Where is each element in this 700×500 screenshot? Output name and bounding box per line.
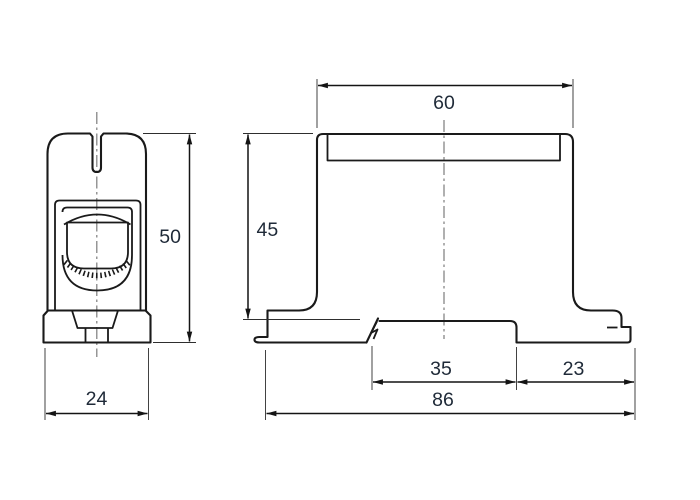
side-base-insert bbox=[72, 311, 118, 343]
front-view bbox=[255, 134, 631, 343]
front-base-profile bbox=[255, 311, 631, 343]
terminal-block-drawing: 50 24 60 45 35 23 86 bbox=[0, 0, 700, 500]
dimension-right-foot-width: 23 bbox=[518, 348, 636, 420]
overall-width-label: 86 bbox=[432, 389, 454, 411]
dimension-side-width: 24 bbox=[45, 348, 149, 420]
dimension-side-height: 50 bbox=[143, 134, 196, 343]
side-height-label: 50 bbox=[159, 226, 181, 248]
right-foot-width-label: 23 bbox=[563, 358, 585, 380]
top-width-label: 60 bbox=[433, 92, 455, 114]
technical-drawing-page: 50 24 60 45 35 23 86 bbox=[0, 0, 700, 500]
dimension-rail-recess-width: 35 bbox=[372, 346, 517, 390]
dimension-top-width: 60 bbox=[317, 79, 573, 128]
body-height-label: 45 bbox=[257, 219, 279, 241]
side-width-label: 24 bbox=[86, 388, 108, 410]
side-clamp-cage bbox=[67, 223, 128, 269]
rail-recess-width-label: 35 bbox=[430, 358, 452, 380]
